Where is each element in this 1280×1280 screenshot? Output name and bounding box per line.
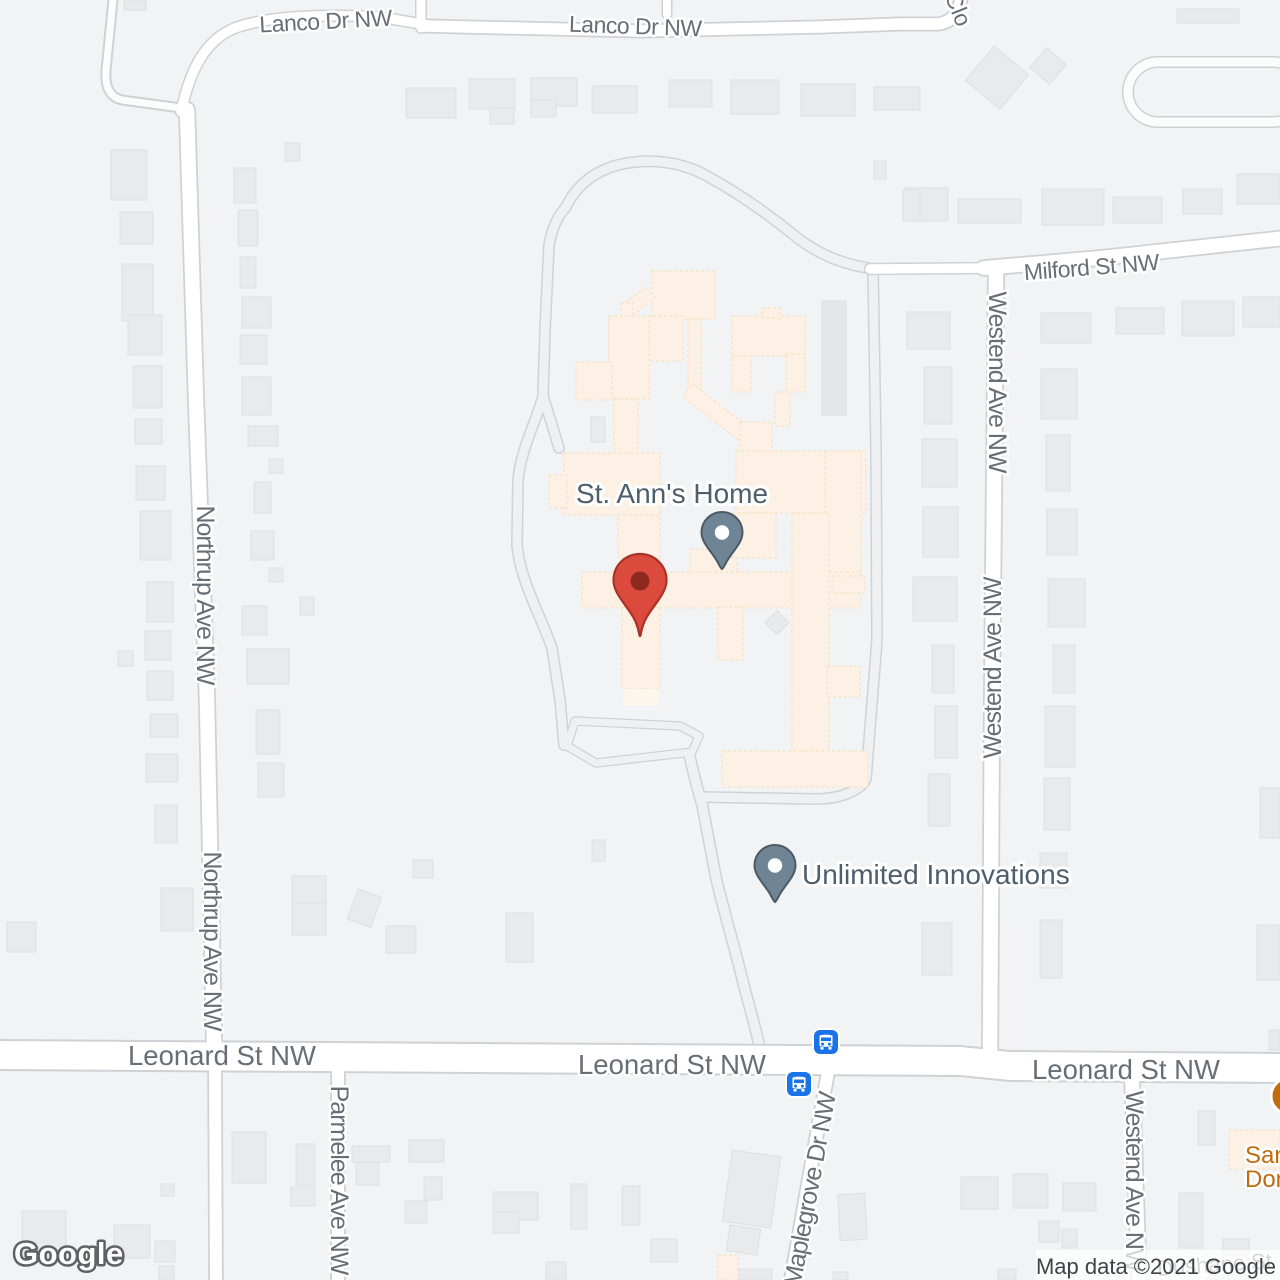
svg-text:Leonard St NW: Leonard St NW [128,1040,316,1071]
svg-text:Sandy's: Sandy's [1245,1142,1280,1169]
svg-text:Unlimited Innovations: Unlimited Innovations [802,859,1070,890]
svg-text:Google: Google [14,1236,124,1271]
svg-text:St. Ann's Home: St. Ann's Home [576,478,768,509]
svg-text:Leonard St NW: Leonard St NW [1032,1054,1220,1085]
svg-text:Westend Ave NW: Westend Ave NW [979,576,1007,758]
svg-text:Donuts: Donuts [1245,1166,1280,1193]
svg-text:Northrup Ave NW: Northrup Ave NW [191,505,219,685]
svg-text:Westend Ave NW: Westend Ave NW [983,292,1011,474]
svg-text:Lanco Dr NW: Lanco Dr NW [569,11,703,42]
svg-text:Map data ©2021 Google: Map data ©2021 Google [1036,1254,1276,1279]
svg-text:Leonard St NW: Leonard St NW [578,1049,766,1080]
svg-text:Parmelee Ave NW: Parmelee Ave NW [325,1086,353,1276]
svg-text:Northrup Ave NW: Northrup Ave NW [198,851,226,1031]
svg-text:Westend Ave NW: Westend Ave NW [1120,1091,1148,1273]
